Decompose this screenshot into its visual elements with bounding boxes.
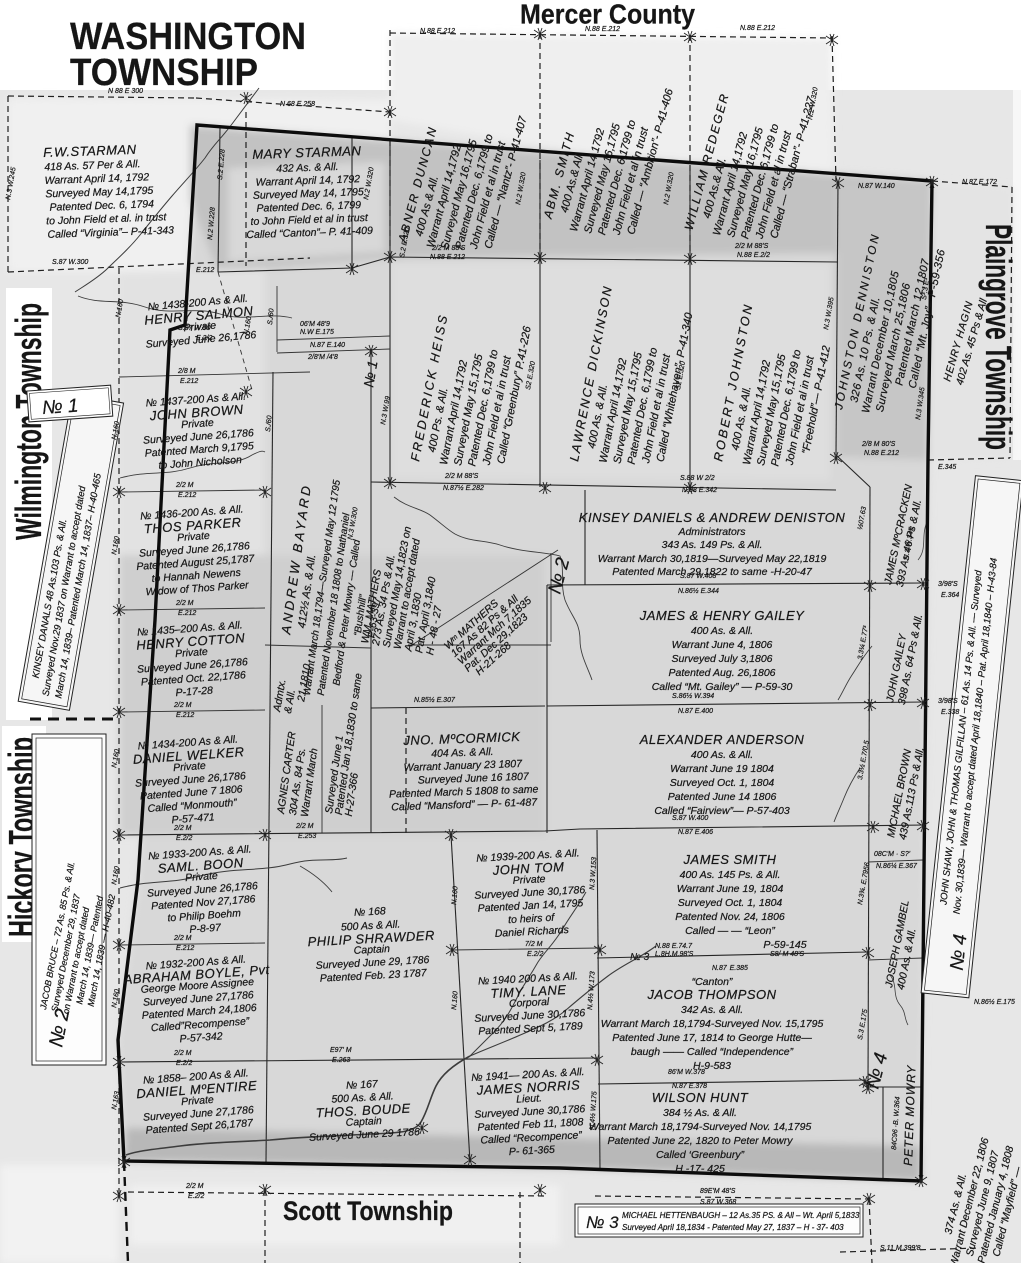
- svg-text:2/2 M 88'S: 2/2 M 88'S: [431, 245, 466, 252]
- svg-text:2/2 M: 2/2 M: [173, 825, 192, 832]
- svg-text:N.87 E.385: N.87 E.385: [712, 965, 748, 972]
- svg-text:Patented June 17, 1814 to Geor: Patented June 17, 1814 to George Hutte—: [612, 1032, 812, 1044]
- svg-text:Patented June 14 1806: Patented June 14 1806: [668, 791, 777, 803]
- svg-text:N.87½ E.282: N.87½ E.282: [443, 484, 484, 492]
- svg-text:89E'M 48'S: 89E'M 48'S: [700, 1188, 736, 1195]
- svg-text:N.86¼ E.367: N.86¼ E.367: [876, 863, 918, 870]
- svg-text:N.87 E.140: N.87 E.140: [310, 342, 345, 349]
- svg-text:342 As. & All.: 342 As. & All.: [681, 1004, 743, 1016]
- svg-text:400 As. 145 Ps. & All.: 400 As. 145 Ps. & All.: [680, 869, 781, 881]
- svg-text:baugh —— Called “Independence”: baugh —— Called “Independence”: [631, 1046, 794, 1058]
- svg-text:N.88 E.212: N.88 E.212: [420, 28, 455, 35]
- svg-text:2/2 M: 2/2 M: [295, 823, 314, 830]
- svg-text:N.86½ E.344: N.86½ E.344: [678, 587, 719, 595]
- svg-text:ALEXANDER ANDERSON: ALEXANDER ANDERSON: [639, 732, 805, 747]
- svg-text:2/2 M: 2/2 M: [173, 1050, 192, 1057]
- svg-text:E.212: E.212: [180, 378, 198, 385]
- svg-text:S.88 W 2/2: S.88 W 2/2: [680, 475, 715, 482]
- svg-text:Corporal: Corporal: [509, 996, 551, 1010]
- svg-text:2/2 M: 2/2 M: [173, 935, 192, 942]
- svg-text:Private: Private: [512, 873, 545, 887]
- svg-text:Plaingrove Township: Plaingrove Township: [978, 224, 1019, 450]
- svg-text:Patented June 22, 1820 to Pete: Patented June 22, 1820 to Peter Mowry: [607, 1135, 793, 1147]
- svg-text:Called “Mt. Gailey” — P-59-30: Called “Mt. Gailey” — P-59-30: [652, 681, 793, 693]
- svg-text:N 88 E 300: N 88 E 300: [108, 88, 143, 95]
- svg-text:400 As. & All.: 400 As. & All.: [691, 749, 753, 761]
- svg-text:N.87 E.378: N.87 E.378: [672, 1083, 707, 1090]
- svg-text:Surveyed April 18,1834 - Paten: Surveyed April 18,1834 - Patented May 27…: [622, 1223, 844, 1232]
- svg-text:N.88 E.212: N.88 E.212: [740, 25, 775, 32]
- svg-text:S.87 W.368: S.87 W.368: [700, 1199, 736, 1206]
- svg-text:404 As. & All.: 404 As. & All.: [431, 746, 494, 760]
- svg-text:2/2 M 88'S: 2/2 M 88'S: [734, 243, 769, 250]
- svg-text:Captain: Captain: [345, 1115, 382, 1129]
- svg-text:N.87 W.140: N.87 W.140: [858, 183, 895, 190]
- svg-text:H -17- 425: H -17- 425: [675, 1163, 725, 1175]
- svg-text:E.212: E.212: [176, 712, 194, 719]
- svg-text:№ 3: № 3: [586, 1213, 619, 1232]
- svg-text:E.2/2: E.2/2: [176, 835, 192, 842]
- svg-text:Private: Private: [175, 646, 209, 660]
- svg-text:E.345: E.345: [938, 464, 956, 471]
- svg-text:to heirs of: to heirs of: [508, 912, 556, 926]
- svg-text:S.87 W.400: S.87 W.400: [672, 815, 708, 822]
- svg-text:Warrant March 18,1794-Surveyed: Warrant March 18,1794-Surveyed Nov. 14,1…: [589, 1121, 812, 1133]
- svg-text:E97' M: E97' M: [330, 1047, 352, 1054]
- svg-text:N.W E.175: N.W E.175: [300, 329, 334, 336]
- svg-text:Administrators: Administrators: [677, 526, 746, 538]
- svg-text:E.338: E.338: [941, 709, 959, 716]
- svg-text:E.2/2: E.2/2: [527, 951, 543, 958]
- svg-text:06'M 48'9: 06'M 48'9: [300, 321, 330, 328]
- svg-text:S.87 W.408: S.87 W.408: [680, 573, 716, 580]
- svg-text:Warrant March 18,1794-Surveyed: Warrant March 18,1794-Surveyed Nov. 15,1…: [601, 1018, 824, 1030]
- svg-text:S.87 W.300: S.87 W.300: [52, 259, 88, 266]
- svg-text:7/2 M: 7/2 M: [525, 941, 543, 948]
- svg-text:Patented Nov. 24, 1806: Patented Nov. 24, 1806: [675, 911, 785, 923]
- svg-text:400 As. & All.: 400 As. & All.: [691, 625, 753, 637]
- svg-text:N.87 E.400: N.87 E.400: [678, 708, 713, 715]
- svg-text:N.88 E.342: N.88 E.342: [682, 487, 717, 494]
- svg-text:№ 1: № 1: [41, 396, 79, 419]
- svg-text:P-8-97: P-8-97: [189, 922, 222, 936]
- svg-text:JAMES & HENRY GAILEY: JAMES & HENRY GAILEY: [639, 608, 805, 623]
- svg-text:Surveyed July 3,1806: Surveyed July 3,1806: [672, 653, 773, 665]
- svg-text:343 As. 149 Ps. & All.: 343 As. 149 Ps. & All.: [662, 539, 763, 551]
- svg-text:Private: Private: [181, 1094, 215, 1108]
- svg-text:Surveyed Oct. 1, 1804: Surveyed Oct. 1, 1804: [670, 777, 775, 789]
- svg-text:2/8'M /4'8: 2/8'M /4'8: [307, 354, 338, 361]
- svg-text:N.88 E.212: N.88 E.212: [430, 254, 465, 261]
- svg-text:Private: Private: [181, 417, 215, 431]
- svg-text:2/8 M 80'S: 2/8 M 80'S: [861, 441, 896, 448]
- svg-text:Captain: Captain: [353, 943, 390, 957]
- svg-text:86'M W.378: 86'M W.378: [668, 1069, 705, 1076]
- svg-text:L.8H.M.98'S: L.8H.M.98'S: [655, 951, 694, 958]
- svg-text:N.88 E.212: N.88 E.212: [864, 450, 899, 457]
- svg-text:P- 61-365: P- 61-365: [508, 1144, 555, 1158]
- svg-text:Patented Aug. 26,1806: Patented Aug. 26,1806: [668, 667, 775, 679]
- svg-text:N.85½ E.307: N.85½ E.307: [414, 696, 456, 704]
- svg-text:2/2 M: 2/2 M: [175, 600, 194, 607]
- svg-text:Warrant June 4, 1806: Warrant June 4, 1806: [672, 639, 773, 651]
- svg-text:N.87 E.172: N.87 E.172: [962, 179, 997, 186]
- svg-text:E.2/2: E.2/2: [188, 1193, 204, 1200]
- svg-text:432 As. & All.: 432 As. & All.: [276, 161, 339, 175]
- svg-text:S.11 M 399'8: S.11 M 399'8: [880, 1245, 921, 1252]
- svg-text:MICHAEL HETTENBAUGH – 12 As.35: MICHAEL HETTENBAUGH – 12 As.35 PS. & All…: [622, 1211, 860, 1220]
- svg-text:№ 167: № 167: [346, 1078, 380, 1092]
- svg-text:Warrant June 19, 1804: Warrant June 19, 1804: [677, 883, 784, 895]
- svg-text:2/2 M: 2/2 M: [175, 482, 194, 489]
- svg-text:JAMES SMITH: JAMES SMITH: [683, 852, 777, 867]
- svg-text:WILSON HUNT: WILSON HUNT: [652, 1090, 749, 1105]
- svg-text:E.212: E.212: [176, 945, 194, 952]
- svg-text:№ 3: № 3: [630, 952, 650, 963]
- svg-text:Scott Township: Scott Township: [283, 1196, 453, 1226]
- svg-text:2/2 M: 2/2 M: [185, 1183, 204, 1190]
- svg-text:08C'M · S?': 08C'M · S?': [874, 851, 911, 858]
- svg-text:E.212: E.212: [178, 492, 196, 499]
- svg-text:E.253: E.253: [298, 833, 316, 840]
- svg-text:3/98'S: 3/98'S: [938, 698, 958, 705]
- svg-text:E.364: E.364: [941, 592, 959, 599]
- svg-text:KINSEY DANIELS & ANDREW DENIST: KINSEY DANIELS & ANDREW DENISTON: [579, 510, 846, 525]
- svg-text:P-59-145: P-59-145: [763, 939, 806, 951]
- svg-text:Called — — “Leon”: Called — — “Leon”: [685, 925, 775, 937]
- svg-text:N.87 E.406: N.87 E.406: [678, 829, 713, 836]
- svg-text:2/8 M: 2/8 M: [177, 368, 196, 375]
- svg-text:3/98'S: 3/98'S: [938, 581, 958, 588]
- svg-text:E.2/2: E.2/2: [176, 1060, 192, 1067]
- svg-text:E.212: E.212: [178, 610, 196, 617]
- svg-text:Called ‘Greenbury”: Called ‘Greenbury”: [656, 1149, 745, 1161]
- svg-text:E.2/2: E.2/2: [196, 335, 212, 342]
- svg-text:Private: Private: [177, 530, 211, 544]
- svg-text:N.88 E.74.7: N.88 E.74.7: [655, 943, 693, 950]
- svg-text:TOWNSHIP: TOWNSHIP: [70, 52, 258, 94]
- svg-text:N.88 E.2/2: N.88 E.2/2: [737, 252, 770, 259]
- svg-text:N 68 E.258: N 68 E.258: [280, 101, 315, 108]
- svg-text:Private: Private: [185, 870, 219, 884]
- svg-text:2/2 M 88'S: 2/2 M 88'S: [444, 473, 479, 480]
- svg-text:Surveyed Oct. 1, 1804: Surveyed Oct. 1, 1804: [678, 897, 783, 909]
- svg-text:Warrant June 19 1804: Warrant June 19 1804: [670, 763, 774, 775]
- svg-text:Warrant March 30,1819—Surveyed: Warrant March 30,1819—Surveyed May 22,18…: [598, 553, 827, 565]
- svg-text:S.86½ W.394: S.86½ W.394: [672, 692, 714, 700]
- svg-text:E.212: E.212: [196, 267, 214, 274]
- svg-text:N.88 E.212: N.88 E.212: [585, 26, 620, 33]
- svg-text:N.86½ E.175: N.86½ E.175: [974, 998, 1015, 1006]
- svg-text:S.87 W.90: S.87 W.90: [178, 325, 211, 332]
- svg-text:№ 168: № 168: [354, 905, 387, 919]
- svg-text:384 ½ As. & All.: 384 ½ As. & All.: [663, 1107, 737, 1119]
- svg-text:JACOB THOMPSON: JACOB THOMPSON: [646, 987, 776, 1002]
- svg-text:Private: Private: [173, 760, 207, 774]
- svg-text:E.263: E.263: [332, 1057, 350, 1064]
- svg-text:2/2 M: 2/2 M: [173, 702, 192, 709]
- svg-text:Lieut.: Lieut.: [516, 1092, 542, 1105]
- svg-text:№ 4: № 4: [947, 933, 972, 971]
- svg-text:S8/ M 48'S: S8/ M 48'S: [770, 951, 804, 958]
